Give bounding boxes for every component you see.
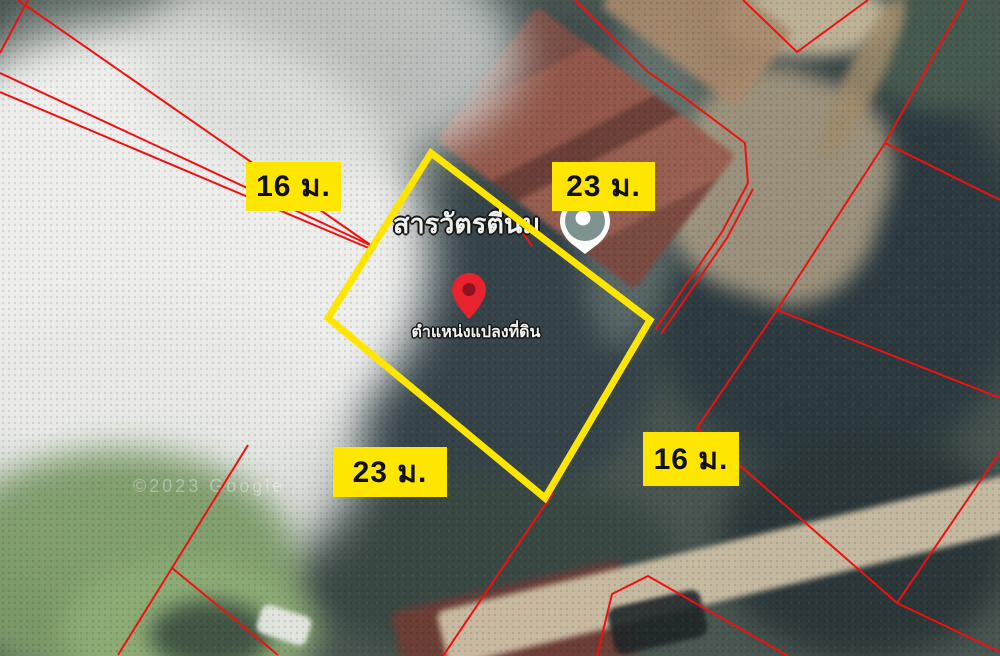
location-pin-icon (449, 272, 489, 320)
location-pin-caption: ตำแหน่งแปลงที่ดิน (386, 320, 566, 345)
satellite-map-canvas: ©2023 Google สารวัตรตี๋นม (0, 0, 1000, 656)
measurement-label-left: 16 ม. (246, 162, 341, 211)
measurement-label-right: 16 ม. (643, 432, 739, 486)
imagery-watermark: ©2023 Google (133, 476, 285, 497)
measurement-label-bottom: 23 ม. (333, 447, 447, 497)
measurement-label-top: 23 ม. (552, 162, 655, 211)
poi-place-name: สารวัตรตี๋นม (393, 202, 540, 245)
